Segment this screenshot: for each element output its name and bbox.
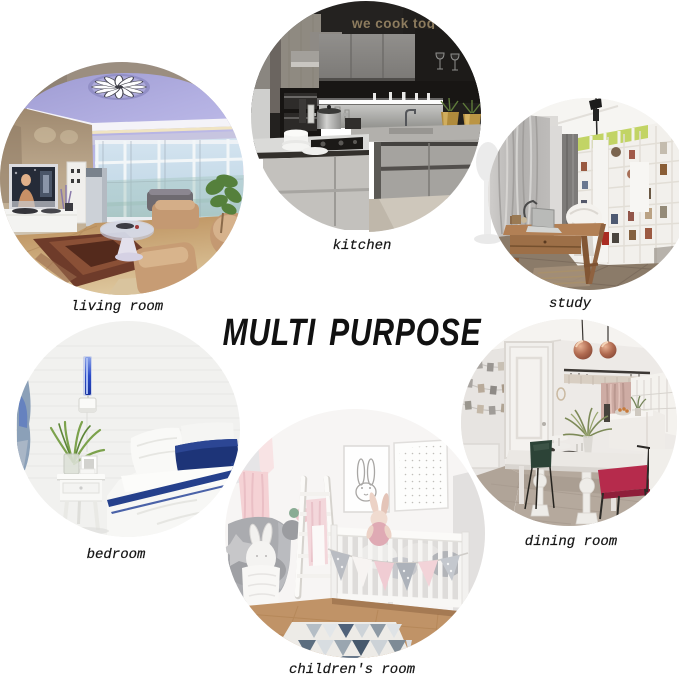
svg-text:we cook tog: we cook tog <box>351 16 436 31</box>
